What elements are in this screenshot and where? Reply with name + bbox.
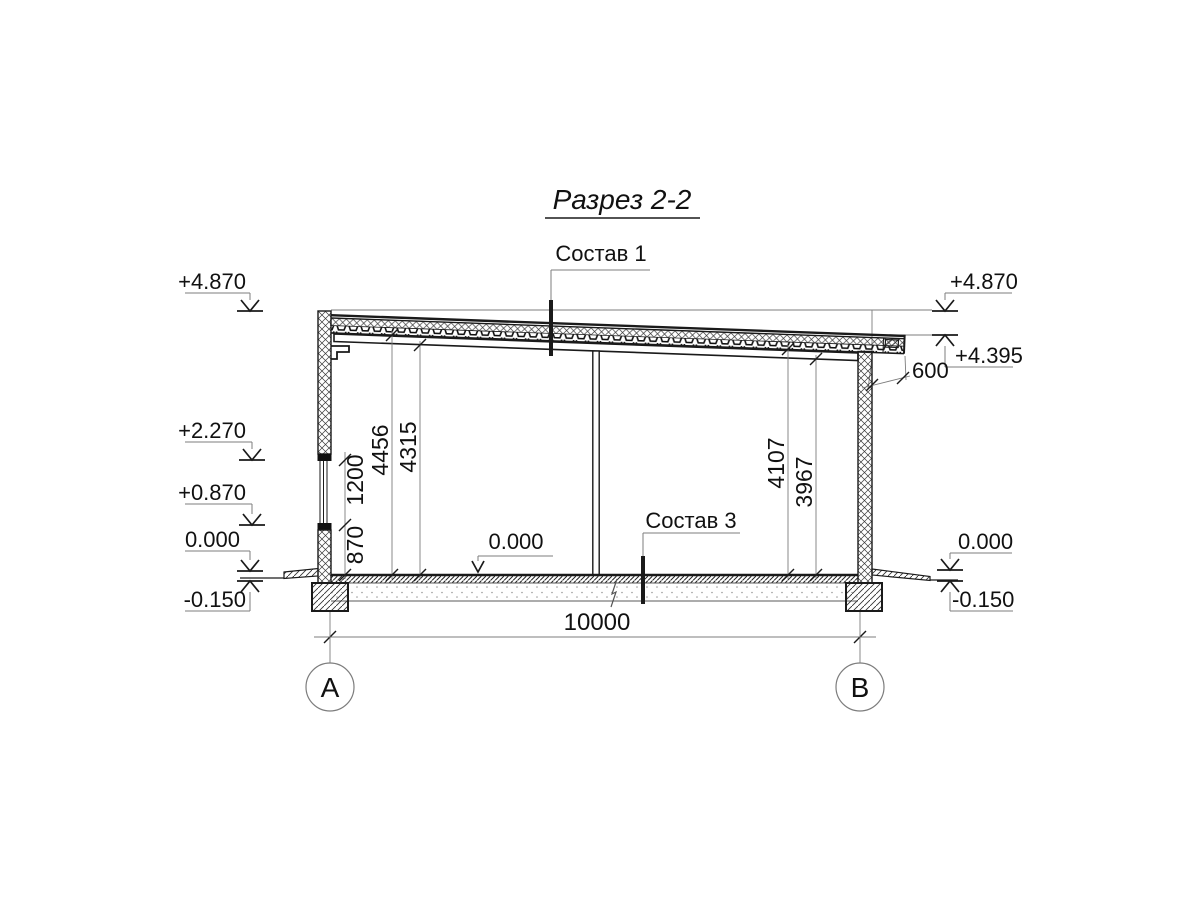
elevation-right-floor-value: 0.000 [958, 529, 1013, 554]
section-drawing-sheet: Разрез 2-2 [0, 0, 1200, 900]
elevation-left-window-head-value: +2.270 [178, 418, 246, 443]
interior-dimensions: 870 1200 4456 4315 4107 3967 [339, 329, 822, 581]
elevation-markers-left: +4.870 +2.270 +0.870 0.000 [178, 269, 265, 612]
axis-letter-b: В [851, 672, 870, 703]
elevation-left-grade-value: -0.150 [184, 587, 246, 612]
dim-left-to-beam: 4315 [395, 421, 421, 472]
elevation-left-grade: -0.150 [184, 581, 263, 612]
floor-slab [331, 575, 858, 607]
drawing-title: Разрез 2-2 [545, 184, 700, 218]
elevation-right-grade: -0.150 [937, 581, 1014, 612]
dim-right-to-deck: 4107 [763, 437, 789, 488]
dim-overall-width: 10000 [564, 609, 631, 636]
page-title: Разрез 2-2 [553, 184, 692, 215]
roof-composition-label: Состав 1 [555, 241, 646, 266]
left-wall-lower [318, 530, 331, 583]
left-wall-upper [318, 311, 331, 454]
dim-right-to-beam: 3967 [791, 456, 817, 507]
elevation-right-grade-value: -0.150 [952, 587, 1014, 612]
elevation-left-floor: 0.000 [185, 527, 263, 571]
floor-base-layer [331, 583, 858, 601]
window-lintel [318, 454, 332, 461]
center-column [593, 351, 599, 575]
window-sill [318, 523, 332, 530]
apron-left [284, 569, 318, 579]
elevation-left-window-head: +2.270 [178, 418, 265, 460]
window-glazing [320, 461, 327, 523]
axis-letter-a: А [321, 672, 340, 703]
left-wall [318, 311, 332, 583]
elevation-left-parapet: +4.870 [178, 269, 263, 311]
dim-sill-height: 870 [342, 526, 368, 564]
apron-right [872, 569, 930, 581]
elevation-interior-floor: 0.000 [472, 529, 553, 572]
elevation-right-floor: 0.000 [937, 529, 1013, 570]
roof-edge-cap [904, 335, 905, 354]
foundation-left [312, 583, 348, 611]
elevation-markers-right: +4.870 +4.395 0.000 -0.15 [932, 269, 1023, 612]
overall-width-dimension: 10000 [314, 609, 876, 643]
elevation-left-window-sill: +0.870 [178, 480, 265, 525]
elevation-interior-floor-value: 0.000 [488, 529, 543, 554]
roof-edge-detail [885, 340, 898, 348]
beam-corbel [331, 346, 349, 359]
dim-left-to-deck: 4456 [367, 424, 393, 475]
dim-roof-overhang: 600 [912, 358, 949, 383]
elevation-left-parapet-value: +4.870 [178, 269, 246, 294]
elevation-right-parapet: +4.870 [932, 269, 1018, 311]
elevation-left-window-sill-value: +0.870 [178, 480, 246, 505]
elevation-right-roof-low-value: +4.395 [955, 343, 1023, 368]
floor-composition-label: Состав 3 [645, 508, 736, 533]
elevation-right-parapet-value: +4.870 [950, 269, 1018, 294]
elevation-left-floor-value: 0.000 [185, 527, 240, 552]
roof-fascia-line [883, 338, 884, 353]
foundation-right [846, 583, 882, 611]
section-drawing-canvas: Разрез 2-2 [0, 0, 1200, 900]
dim-window-height: 1200 [342, 454, 368, 505]
floor-screed-layer [331, 576, 858, 583]
